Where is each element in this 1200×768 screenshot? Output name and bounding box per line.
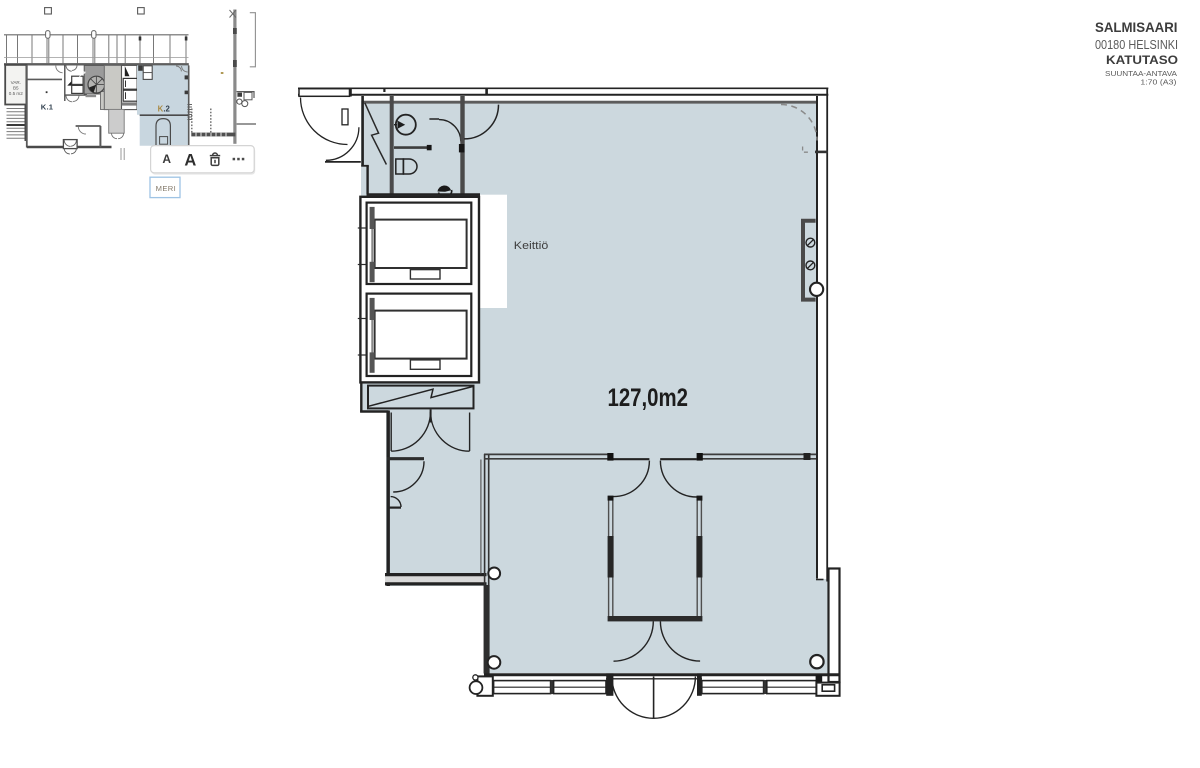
svg-text:SUUNTAA-ANTAVA: SUUNTAA-ANTAVA (1105, 69, 1177, 78)
svg-text:KATUTASO: KATUTASO (1106, 53, 1178, 67)
svg-text:A: A (184, 151, 196, 169)
svg-text:.2: .2 (163, 105, 170, 114)
svg-text:0.5 m2: 0.5 m2 (9, 91, 23, 96)
svg-text:K.1: K.1 (41, 102, 54, 111)
svg-text:SALMISAARI: SALMISAARI (1095, 19, 1178, 35)
svg-text:MERI: MERI (156, 184, 177, 193)
svg-text:VAR.: VAR. (11, 80, 21, 85)
svg-text:1:70 (A3): 1:70 (A3) (1140, 78, 1176, 87)
svg-text:127,0m2: 127,0m2 (608, 385, 689, 412)
svg-text:A: A (162, 152, 171, 166)
svg-text:Keittiö: Keittiö (514, 240, 549, 252)
svg-text:00180 HELSINKI: 00180 HELSINKI (1095, 37, 1178, 52)
svg-text:B5: B5 (13, 85, 19, 90)
